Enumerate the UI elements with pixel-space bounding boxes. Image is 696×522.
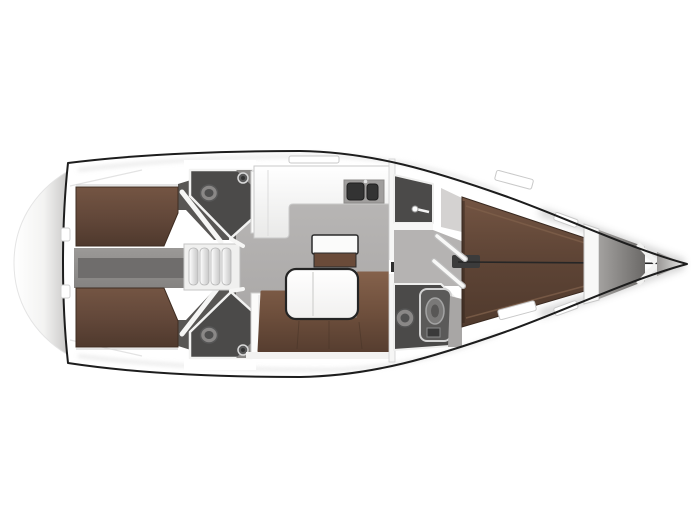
faucet-icon [364, 180, 368, 184]
sink-drain-icon [241, 348, 245, 352]
toilet-bowl-icon [205, 189, 214, 197]
step-tread [200, 248, 209, 285]
deck-hatch [289, 156, 339, 163]
shelf-band-bottom [184, 358, 256, 370]
engine-hatch [78, 258, 184, 278]
stern-notch [61, 285, 70, 298]
deck-hatch-group [494, 170, 533, 189]
sideboard [312, 235, 358, 267]
companionway-steps [184, 244, 240, 290]
forward-bulkhead [584, 224, 599, 304]
galley-sink-small-icon [367, 184, 378, 200]
sideboard-front [314, 253, 356, 267]
step-tread [189, 248, 198, 285]
shower-grate-icon [427, 328, 440, 337]
wall-segment [231, 289, 243, 291]
forward-head-shower [394, 284, 456, 350]
floor-plan-canvas [0, 0, 696, 522]
aft-cabin-port-berth [76, 187, 178, 246]
transom-swim-platform [14, 171, 68, 355]
shower-drain-icon [431, 305, 439, 318]
sideboard-top [312, 235, 358, 254]
door-knob-icon [412, 206, 418, 212]
sofa-base-trim [246, 352, 392, 359]
cabin-floor-strip [448, 296, 462, 347]
bow [584, 224, 686, 304]
salon-table [286, 269, 358, 319]
stern-notch [61, 228, 70, 241]
aft-cabin-starboard-berth [76, 288, 178, 347]
galley-sink-large-icon [347, 183, 364, 200]
step-tread [222, 248, 231, 285]
wet-room [394, 175, 433, 223]
aft-section [74, 160, 268, 370]
step-tread [211, 248, 220, 285]
wall-segment [394, 223, 433, 230]
toilet-bowl-icon [401, 314, 410, 323]
toilet-bowl-icon [205, 331, 214, 339]
yacht-floor-plan [0, 0, 696, 522]
anchor-locker [599, 230, 645, 299]
deck-hatch [494, 170, 533, 189]
sink-drain-icon [241, 176, 245, 180]
